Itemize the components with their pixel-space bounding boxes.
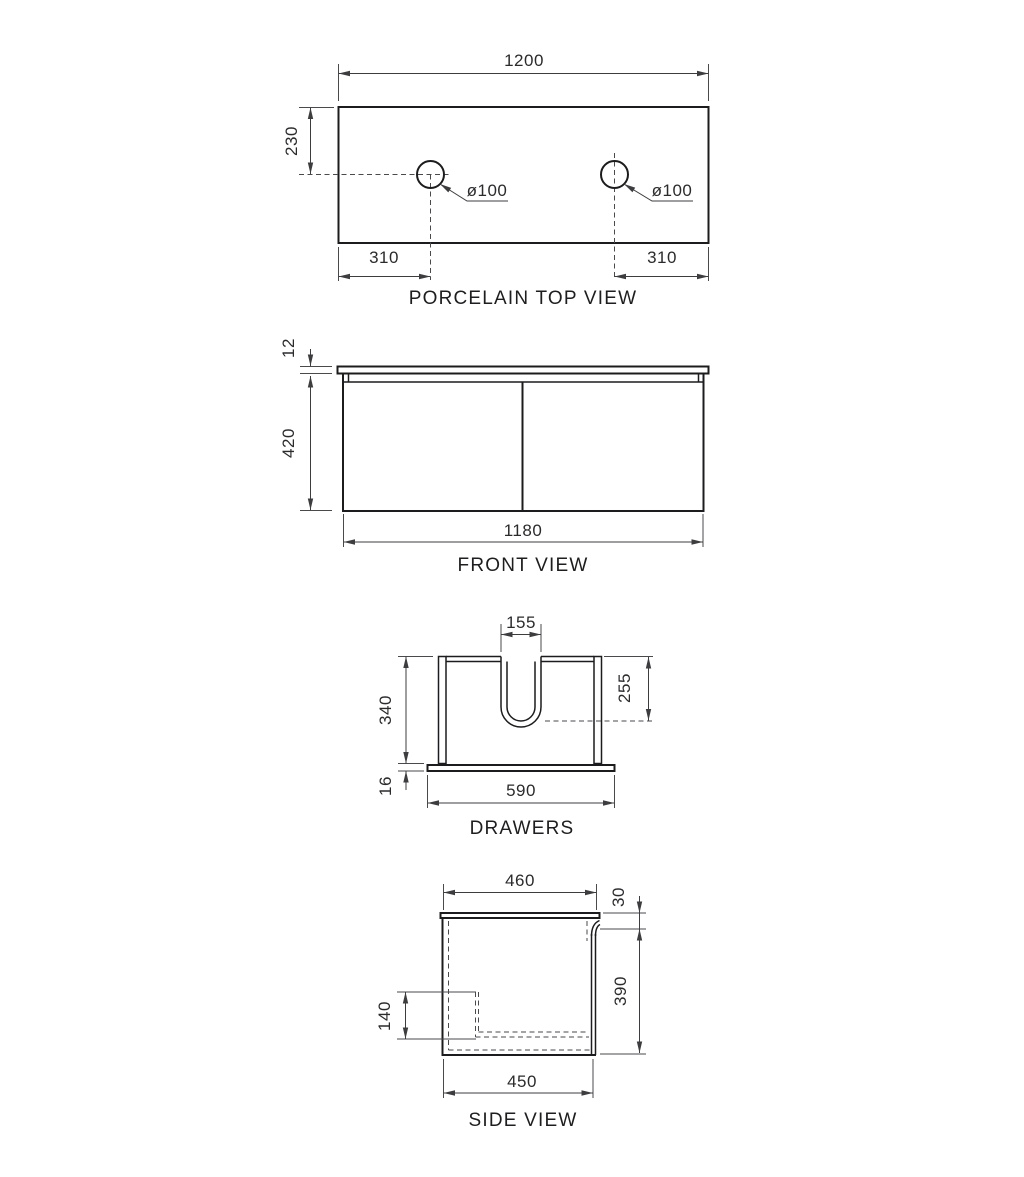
dim-label-top-depth: 460 <box>505 871 535 890</box>
view-title-side: SIDE VIEW <box>469 1110 578 1131</box>
dim-label-base-thickness: 16 <box>376 776 395 796</box>
dim-label-setback: 230 <box>282 126 301 156</box>
drawer-u-notch-inner <box>507 662 535 722</box>
view-title-top: PORCELAIN TOP VIEW <box>409 288 638 309</box>
dim-label-body-depth: 450 <box>507 1072 537 1091</box>
dim-label-cabinet-height: 420 <box>279 428 298 458</box>
dim-label-offset-right: 310 <box>647 248 677 267</box>
view-title-front: FRONT VIEW <box>458 555 589 576</box>
dim-label-top-thickness: 12 <box>279 338 298 358</box>
dim-label-offset-left: 310 <box>369 248 399 267</box>
porcelain-top-view: 1200 230 ø100 ø100 310 310 PORCELAIN TOP… <box>282 51 709 309</box>
dim-label-top-gap: 30 <box>609 887 628 907</box>
finger-pull-outer-curve <box>596 925 601 937</box>
technical-drawing-canvas: 1200 230 ø100 ø100 310 310 PORCELAIN TOP… <box>0 0 1024 1177</box>
dim-label-top-width: 1200 <box>504 51 544 70</box>
spec-sheet-page: 1200 230 ø100 ø100 310 310 PORCELAIN TOP… <box>0 0 1024 1177</box>
front-countertop <box>338 367 709 374</box>
dim-label-body-height: 390 <box>611 976 630 1006</box>
dim-label-drawer-width: 590 <box>506 781 536 800</box>
dim-label-hole-left: ø100 <box>467 181 508 200</box>
side-countertop <box>441 913 600 918</box>
dim-label-drawer-height: 340 <box>376 695 395 725</box>
front-view: 12 420 1180 FRONT VIEW <box>279 338 709 576</box>
drawer-side-left <box>439 657 447 764</box>
dim-label-notch-width: 155 <box>506 613 536 632</box>
dim-label-drawer-inner: 140 <box>375 1001 394 1031</box>
view-title-drawers: DRAWERS <box>470 818 575 839</box>
dim-label-cabinet-width: 1180 <box>504 521 543 540</box>
dim-label-hole-right: ø100 <box>652 181 693 200</box>
drawer-base-plate <box>428 765 615 771</box>
side-view: 460 30 390 140 <box>375 871 646 1131</box>
drawers-view: 155 340 16 255 590 DRAWERS <box>376 613 653 839</box>
dim-label-notch-depth: 255 <box>615 673 634 703</box>
drawer-side-right <box>594 657 602 764</box>
